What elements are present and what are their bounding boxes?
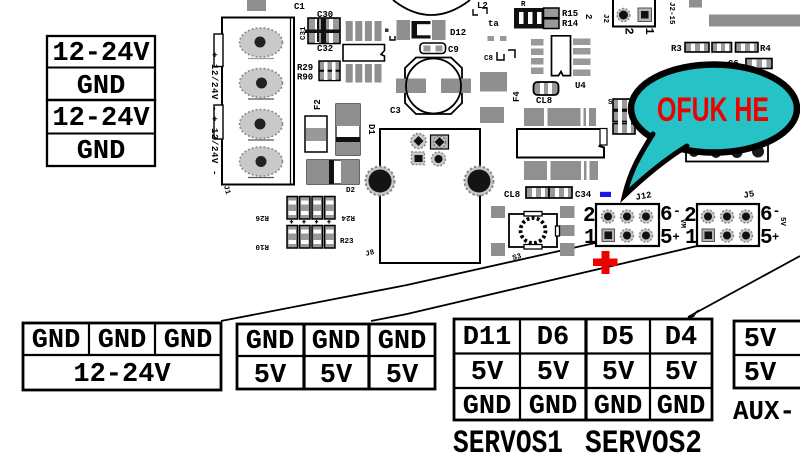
svg-text:R29: R29 xyxy=(297,63,313,73)
svg-text:+ 12/24V -: + 12/24V - xyxy=(209,52,219,112)
svg-text:12-24V: 12-24V xyxy=(52,104,150,134)
svg-text:GND: GND xyxy=(378,327,427,357)
svg-text:D12: D12 xyxy=(450,28,466,38)
svg-text:SERVOS2: SERVOS2 xyxy=(585,425,702,458)
svg-text:U4: U4 xyxy=(575,81,586,91)
svg-text:C1: C1 xyxy=(294,2,305,12)
svg-text:5V: 5V xyxy=(471,358,504,388)
svg-text:2: 2 xyxy=(583,205,596,228)
svg-text:GND: GND xyxy=(246,327,295,357)
svg-text:GND: GND xyxy=(98,326,147,356)
svg-text:J2: J2 xyxy=(601,14,609,24)
svg-text:R15: R15 xyxy=(562,9,578,19)
svg-text:5V: 5V xyxy=(665,358,698,388)
svg-text:D2: D2 xyxy=(346,187,356,195)
svg-text:R: R xyxy=(521,1,526,9)
svg-text:D5: D5 xyxy=(602,323,634,353)
svg-text:5V: 5V xyxy=(254,361,287,391)
svg-text:2: 2 xyxy=(583,14,593,19)
svg-text:GND: GND xyxy=(312,327,361,357)
svg-text:5V: 5V xyxy=(744,325,777,355)
svg-text:1: 1 xyxy=(642,28,656,35)
svg-text:12-24V: 12-24V xyxy=(52,39,150,69)
svg-text:C9: C9 xyxy=(448,45,459,55)
svg-text:D4: D4 xyxy=(665,323,697,353)
svg-text:2: 2 xyxy=(622,28,636,35)
svg-text:+: + xyxy=(772,231,779,245)
svg-text:R10: R10 xyxy=(255,242,269,250)
svg-text:6: 6 xyxy=(760,204,773,227)
svg-text:GND: GND xyxy=(32,326,81,356)
svg-text:J5: J5 xyxy=(743,189,755,201)
svg-text:OFUK HE: OFUK HE xyxy=(657,91,769,129)
svg-text:GND: GND xyxy=(164,326,213,356)
svg-text:SERVOS1: SERVOS1 xyxy=(453,425,563,458)
svg-text:5V: 5V xyxy=(778,217,786,227)
svg-text:CL8: CL8 xyxy=(504,190,520,200)
svg-text:5: 5 xyxy=(760,227,773,250)
svg-text:C3: C3 xyxy=(390,106,401,116)
svg-text:+ 12/24V -: + 12/24V - xyxy=(209,116,219,176)
svg-text:GND: GND xyxy=(594,392,643,422)
svg-text:R24: R24 xyxy=(341,213,355,221)
svg-text:1: 1 xyxy=(685,227,698,250)
svg-text:5V: 5V xyxy=(386,361,419,391)
svg-text:GND: GND xyxy=(77,72,126,102)
svg-text:AUX-: AUX- xyxy=(733,398,795,428)
svg-text:C34: C34 xyxy=(575,190,592,200)
svg-text:5V: 5V xyxy=(320,361,353,391)
svg-text:C32: C32 xyxy=(317,44,333,54)
svg-text:5V: 5V xyxy=(537,358,570,388)
svg-text:D6: D6 xyxy=(537,323,569,353)
svg-text:GND: GND xyxy=(657,392,706,422)
svg-text:F2: F2 xyxy=(313,99,323,110)
svg-text:R3: R3 xyxy=(671,44,682,54)
svg-text:D11: D11 xyxy=(463,323,512,353)
svg-text:R26: R26 xyxy=(255,213,269,221)
svg-text:ta: ta xyxy=(488,19,499,29)
svg-text:-: - xyxy=(673,204,681,219)
svg-text:R90: R90 xyxy=(297,73,313,83)
svg-text:R4: R4 xyxy=(760,44,771,54)
svg-text:CL8: CL8 xyxy=(536,96,552,106)
svg-text:L2: L2 xyxy=(477,1,488,11)
svg-text:12-24V: 12-24V xyxy=(73,360,171,390)
svg-text:GND: GND xyxy=(463,392,512,422)
svg-text:+: + xyxy=(673,231,680,245)
svg-text:5: 5 xyxy=(660,227,673,250)
svg-text:5V: 5V xyxy=(744,359,777,389)
svg-text:R14: R14 xyxy=(562,19,579,29)
svg-text:6: 6 xyxy=(660,204,673,227)
svg-text:2: 2 xyxy=(684,205,697,228)
svg-text:1: 1 xyxy=(584,227,597,250)
svg-text:J2-15: J2-15 xyxy=(667,2,675,25)
svg-text:5V: 5V xyxy=(602,358,635,388)
svg-text:D1: D1 xyxy=(366,124,376,135)
svg-text:C8: C8 xyxy=(484,55,494,63)
svg-text:R23: R23 xyxy=(340,238,354,246)
svg-text:GND: GND xyxy=(77,137,126,167)
svg-text:F4: F4 xyxy=(512,91,522,102)
svg-text:GND: GND xyxy=(529,392,578,422)
